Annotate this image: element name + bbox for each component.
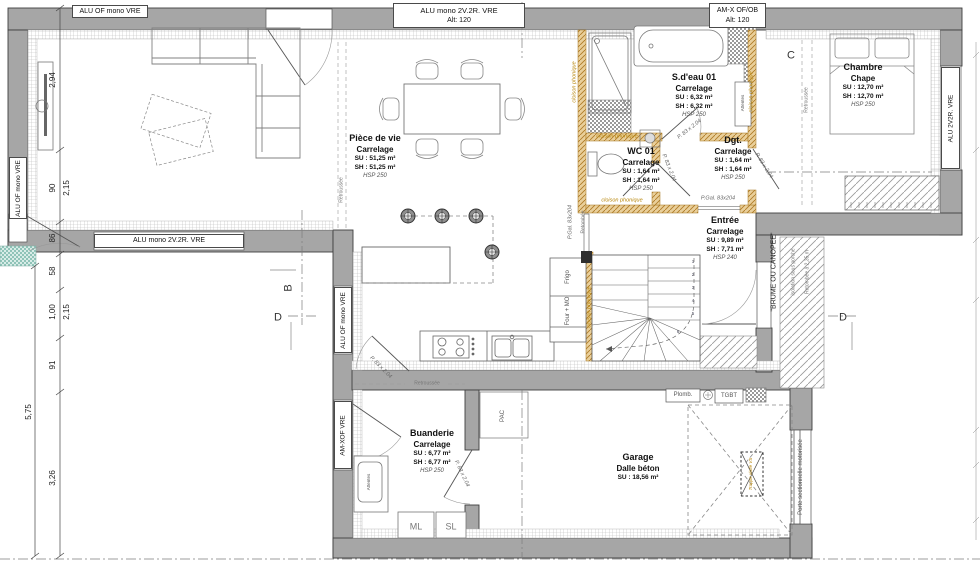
room-label-wc: WC 01 Carrelage SU : 1,64 m² SH : 1,64 m… [622, 146, 659, 194]
dimension-value: 5,75 [25, 404, 33, 420]
dimension-value: 2,15 [63, 304, 71, 320]
room-su: SU : 9,89 m² [706, 237, 743, 245]
washer-label: ML [410, 523, 423, 532]
dimension-value: 91 [49, 361, 57, 370]
cloison-phonique-label: cloison phonique [749, 71, 755, 112]
dryer-label: SL [445, 523, 456, 532]
room-su: SU : 1,64 m² [714, 157, 751, 165]
room-name: Entrée [706, 215, 743, 227]
entry-mat [700, 336, 757, 368]
room-sh: SH : 1,64 m² [714, 166, 751, 174]
exterior-tile-corner [0, 246, 36, 266]
room-name: Chambre [843, 62, 884, 74]
window-label-west-upper: ALU OF mono VRE [334, 287, 352, 353]
room-label-buanderie: Buanderie Carrelage SU : 6,77 m² SH : 6,… [410, 428, 454, 476]
room-floor: Carrelage [622, 158, 659, 168]
section-marker-b: B [284, 284, 295, 291]
window-label-text: ALU OF mono VRE [15, 160, 22, 217]
kitchen-island [362, 247, 450, 283]
bathtub [634, 26, 728, 66]
plumbing-label: Plomb. [674, 392, 693, 398]
room-hsp: HSP 250 [349, 173, 401, 181]
room-su: SU : 1,64 m² [622, 168, 659, 176]
window-label-text: ALU OF mono VRE [79, 7, 140, 16]
room-floor: Carrelage [672, 84, 716, 94]
cloison-phonique-label: cloison phonique [601, 198, 642, 204]
dimension-value: 2,94 [49, 72, 57, 88]
cloison-phonique-label: cloison phonique [572, 61, 578, 102]
kitchen-counter [420, 331, 554, 361]
room-sh: SH : 12,70 m² [843, 93, 884, 101]
stair-step-number: 4 [692, 299, 695, 304]
room-name: S.d'eau 01 [672, 72, 716, 84]
room-floor: Chape [843, 74, 884, 84]
porch-hatch [780, 237, 824, 388]
window-label-text: ALU mono 2V.2R. VRE [420, 6, 497, 16]
window-label-sw-wall: ALU mono 2V.2R. VRE [94, 234, 244, 248]
section-marker-d: D [274, 313, 282, 324]
stair-step-number: 2 [692, 273, 695, 278]
window-label-text: ALU mono 2V.2R. VRE [133, 236, 205, 245]
room-sh: SH : 6,77 m² [410, 459, 454, 467]
room-hsp: HSP 250 [672, 112, 716, 120]
room-floor: Carrelage [706, 227, 743, 237]
stair-step-number: 6 [677, 330, 680, 335]
room-label-entree: Entrée Carrelage SU : 9,89 m² SH : 7,71 … [706, 215, 743, 263]
window-label-west-lower: AM-XOF VRE [334, 401, 352, 469]
room-sh: SH : 1,64 m² [622, 177, 659, 185]
garage-reservation [688, 405, 792, 535]
room-label-sdeau: S.d'eau 01 Carrelage SU : 6,32 m² SH : 6… [672, 72, 716, 120]
attentes-label: Attentes [367, 474, 372, 491]
room-name: Dgt. [714, 135, 751, 147]
isolation-porche-label: Isolation sous porche [792, 248, 797, 295]
room-hsp: HSP 250 [410, 468, 454, 476]
room-name: Garage [616, 452, 659, 464]
window-sill-height: Alt: 120 [726, 16, 750, 25]
retombee-235-label: Retombée à 2,35 m [806, 250, 811, 294]
room-hsp: HSP 250 [843, 102, 884, 110]
room-hsp: HSP 250 [622, 186, 659, 194]
tgbt-label: TGBT [721, 393, 737, 399]
window-label-text: ALU OF mono VRE [340, 292, 347, 349]
sectional-door-label: Porte sectionnelle motorisée [798, 439, 804, 515]
room-floor: Carrelage [714, 147, 751, 157]
retroussee-label: Retroussée [414, 382, 440, 387]
window-label-text: AM-X OF/OB [717, 6, 758, 15]
dimension-value: 86 [49, 234, 57, 243]
room-sh: SH : 6,32 m² [672, 103, 716, 111]
room-name: Buanderie [410, 428, 454, 440]
room-label-piece-de-vie: Pièce de vie Carrelage SU : 51,25 m² SH … [349, 133, 401, 181]
toilet [588, 152, 624, 176]
retroussee-label: Retroussée [340, 177, 345, 203]
dimension-value: 58 [49, 267, 57, 276]
pocket-door-label: P.Gal. 83x204 [701, 196, 735, 202]
dimension-value: 2,15 [63, 180, 71, 196]
dining-table [380, 60, 525, 159]
room-floor: Dalle béton [616, 464, 659, 474]
bedroom-dropped-ceiling [802, 40, 812, 205]
room-name: WC 01 [622, 146, 659, 158]
room-su: SU : 6,32 m² [672, 94, 716, 102]
room-su: SU : 18,56 m² [616, 474, 659, 482]
dimension-value: 3,26 [49, 470, 57, 486]
window-label-east-wall: ALU 2V2R. VRE [941, 67, 960, 169]
floor-plan: ALU OF mono VRE ALU mono 2V.2R. VRE Alt:… [0, 0, 980, 567]
room-sh: SH : 51,25 m² [349, 164, 401, 172]
coffee-tables [141, 94, 213, 165]
plan-geometry [0, 0, 980, 567]
fridge-label: Frigo [565, 270, 571, 284]
dimension-value: 90 [49, 184, 57, 193]
window-sill-height: Alt: 120 [447, 16, 471, 25]
window-label-top-center: ALU mono 2V.2R. VRE Alt: 120 [393, 3, 525, 28]
oven-label: Four + MO [565, 297, 571, 326]
room-label-dgt: Dgt. Carrelage SU : 1,64 m² SH : 1,64 m²… [714, 135, 751, 183]
cloison-phonique-label: cloison phonique [596, 134, 637, 140]
room-floor: Carrelage [349, 145, 401, 155]
room-label-chambre: Chambre Chape SU : 12,70 m² SH : 12,70 m… [843, 62, 884, 110]
room-label-garage: Garage Dalle béton SU : 18,56 m² [616, 452, 659, 483]
room-floor: Carrelage [410, 440, 454, 450]
dimension-line-right [973, 42, 979, 540]
crawlspace-hatch-label: Trappe visite VS [749, 458, 754, 491]
sofa [152, 28, 300, 158]
heat-pump-label: PAC [500, 410, 506, 422]
room-su: SU : 6,77 m² [410, 450, 454, 458]
retombee-label: Retombée [582, 210, 587, 233]
pocket-door-label: P.Gal. 83x204 [568, 205, 574, 239]
cloison-phonique-label: cloison phonique [587, 286, 593, 327]
retroussee-label: Retroussée [805, 87, 810, 113]
brume-canopee-label: "BRUME OU CANOPEE" [771, 233, 778, 312]
dimension-value: 1,00 [49, 304, 57, 320]
section-marker-d: D [839, 313, 847, 324]
window-label-text: AM-XOF VRE [340, 415, 347, 455]
room-sh: SH : 7,71 m² [706, 246, 743, 254]
stair-step-number: 1 [692, 260, 695, 265]
room-hsp: HSP 240 [706, 255, 743, 263]
stair-step-number: 5 [692, 312, 695, 317]
section-marker-c: C [787, 51, 795, 62]
room-hsp: HSP 250 [714, 175, 751, 183]
window-label-text: ALU 2V2R. VRE [947, 94, 954, 142]
window-label-top-right: AM-X OF/OB Alt: 120 [709, 3, 766, 28]
attentes-label: Attentes [741, 95, 746, 112]
room-name: Pièce de vie [349, 133, 401, 145]
stair-step-number: 3 [692, 286, 695, 291]
window-label-left-wall: ALU OF mono VRE [9, 157, 27, 219]
staircase [581, 251, 700, 361]
window-label-top-left: ALU OF mono VRE [72, 5, 148, 18]
room-su: SU : 12,70 m² [843, 84, 884, 92]
room-su: SU : 51,25 m² [349, 155, 401, 163]
